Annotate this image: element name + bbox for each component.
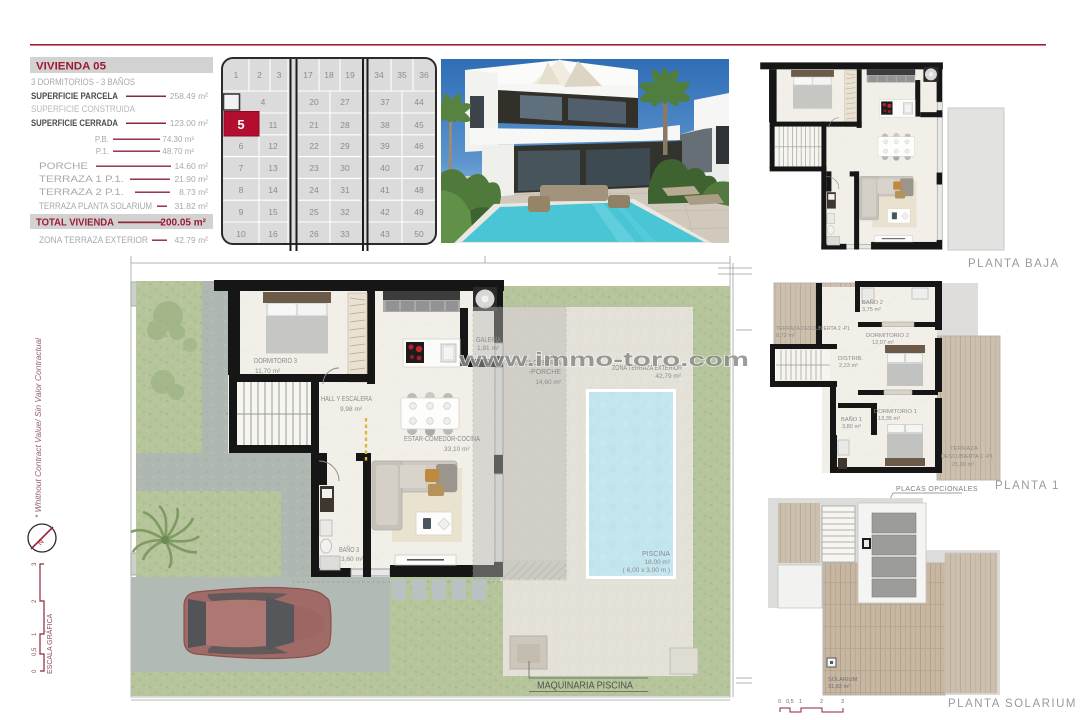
svg-text:DORMITORIO 1: DORMITORIO 1 (874, 409, 917, 415)
svg-text:1: 1 (234, 70, 239, 80)
svg-text:23: 23 (309, 163, 319, 173)
svg-text:14: 14 (268, 185, 278, 195)
svg-text:42.79 m²: 42.79 m² (174, 235, 208, 245)
svg-text:SOLARIUM: SOLARIUM (828, 677, 858, 683)
svg-text:33: 33 (340, 229, 350, 239)
svg-text:8.73 m²: 8.73 m² (179, 187, 208, 197)
svg-text:MAQUINARIA PISCINA: MAQUINARIA PISCINA (537, 681, 633, 692)
svg-text:38: 38 (380, 120, 390, 130)
svg-text:18,00 m²: 18,00 m² (644, 559, 670, 566)
svg-text:DORMITORIO 2: DORMITORIO 2 (866, 333, 909, 339)
svg-text:47: 47 (414, 163, 424, 173)
svg-text:29: 29 (340, 141, 350, 151)
svg-text:TERRAZA 2 P.1.: TERRAZA 2 P.1. (39, 187, 124, 197)
svg-text:4: 4 (261, 97, 266, 107)
svg-text:33,10 m²: 33,10 m² (444, 446, 470, 453)
svg-text:2: 2 (820, 699, 823, 705)
svg-text:VIVIENDA 05: VIVIENDA 05 (36, 61, 106, 73)
svg-text:DESCUBIERTA 1 -P1: DESCUBIERTA 1 -P1 (941, 454, 993, 460)
svg-text:0,5: 0,5 (786, 699, 794, 705)
svg-text:3,80 m²: 3,80 m² (842, 424, 861, 430)
svg-text:14.60 m²: 14.60 m² (174, 161, 208, 171)
svg-text:43: 43 (380, 229, 390, 239)
svg-text:3 DORMITORIOS - 3 BAÑOS: 3 DORMITORIOS - 3 BAÑOS (31, 77, 135, 87)
svg-text:48: 48 (414, 185, 424, 195)
svg-text:49: 49 (414, 207, 424, 217)
svg-text:19: 19 (345, 70, 355, 80)
svg-text:200.05 m²: 200.05 m² (160, 218, 206, 229)
svg-text:15: 15 (268, 207, 278, 217)
svg-text:P.B.: P.B. (95, 135, 109, 144)
svg-text:31: 31 (340, 185, 350, 195)
svg-text:SUPERFICIE CONSTRUIDA: SUPERFICIE CONSTRUIDA (31, 104, 135, 114)
svg-text:74.30 m²: 74.30 m² (162, 135, 194, 144)
svg-text:5: 5 (237, 117, 244, 132)
svg-text:ESTAR-COMEDOR-COCINA: ESTAR-COMEDOR-COCINA (404, 434, 480, 443)
svg-text:1: 1 (799, 699, 802, 705)
svg-text:BAÑO 3: BAÑO 3 (339, 545, 359, 554)
svg-text:P.1.: P.1. (96, 147, 109, 156)
svg-text:123.00 m²: 123.00 m² (170, 118, 208, 128)
svg-text:10: 10 (236, 229, 246, 239)
svg-text:DORMITORIO 3: DORMITORIO 3 (254, 356, 297, 365)
svg-text:45: 45 (414, 120, 424, 130)
svg-text:TERRAZA 1 P.1.: TERRAZA 1 P.1. (39, 174, 124, 184)
svg-text:37: 37 (380, 97, 390, 107)
svg-text:9,98 m²: 9,98 m² (340, 406, 363, 413)
svg-text:0,5: 0,5 (32, 647, 38, 656)
svg-text:6: 6 (239, 141, 244, 151)
svg-text:39: 39 (380, 141, 390, 151)
svg-text:3,60 m²: 3,60 m² (341, 556, 364, 563)
svg-text:13: 13 (268, 163, 278, 173)
svg-text:42,79 m²: 42,79 m² (655, 373, 681, 380)
svg-text:www.immo-toro.com: www.immo-toro.com (457, 350, 749, 371)
svg-text:22: 22 (309, 141, 319, 151)
svg-text:25: 25 (309, 207, 319, 217)
svg-text:34: 34 (374, 70, 384, 80)
svg-text:TOTAL VIVIENDA: TOTAL VIVIENDA (36, 218, 114, 229)
svg-text:PISCINA: PISCINA (642, 551, 670, 558)
svg-text:8: 8 (239, 185, 244, 195)
svg-text:21: 21 (309, 120, 319, 130)
svg-text:21.90 m²: 21.90 m² (174, 174, 208, 184)
svg-text:17: 17 (303, 70, 313, 80)
svg-text:21,90 m²: 21,90 m² (952, 462, 974, 468)
svg-text:11,70 m²: 11,70 m² (255, 368, 281, 375)
svg-text:32: 32 (340, 207, 350, 217)
svg-text:TERRAZA PLANTA SOLARIUM: TERRAZA PLANTA SOLARIUM (39, 201, 152, 211)
svg-text:18: 18 (324, 70, 334, 80)
svg-text:14,60 m²: 14,60 m² (535, 379, 561, 386)
svg-text:2,23 m²: 2,23 m² (839, 363, 858, 369)
svg-text:PORCHE: PORCHE (39, 161, 88, 171)
svg-text:3: 3 (841, 699, 844, 705)
svg-text:ESCALA GRÁFICA: ESCALA GRÁFICA (45, 613, 54, 674)
svg-text:SUPERFICIE PARCELA: SUPERFICIE PARCELA (31, 91, 118, 101)
svg-text:3: 3 (277, 70, 282, 80)
svg-text:12,07 m²: 12,07 m² (872, 340, 894, 346)
svg-text:13,35 m²: 13,35 m² (878, 416, 900, 422)
svg-text:ZONA TERRAZA EXTERIOR: ZONA TERRAZA EXTERIOR (39, 235, 148, 245)
svg-text:41: 41 (380, 185, 390, 195)
svg-text:7: 7 (239, 163, 244, 173)
svg-text:TERRAZA DESCUBIERTA 2 -P1: TERRAZA DESCUBIERTA 2 -P1 (776, 326, 850, 332)
svg-text:26: 26 (309, 229, 319, 239)
svg-text:* Whithout Contract Value/ Sin: * Whithout Contract Value/ Sin Valor Con… (34, 338, 43, 518)
svg-text:20: 20 (309, 97, 319, 107)
svg-text:12: 12 (268, 141, 278, 151)
svg-text:DISTRIB.: DISTRIB. (838, 356, 863, 362)
svg-text:40: 40 (380, 163, 390, 173)
svg-text:PLANTA BAJA: PLANTA BAJA (968, 258, 1060, 270)
svg-text:BAÑO 2: BAÑO 2 (862, 299, 883, 306)
svg-text:42: 42 (380, 207, 390, 217)
svg-text:31,82 m²: 31,82 m² (828, 684, 850, 690)
svg-text:48.70 m²: 48.70 m² (162, 147, 194, 156)
svg-text:50: 50 (414, 229, 424, 239)
svg-text:36: 36 (419, 70, 429, 80)
svg-text:PLANTA SOLARIUM: PLANTA SOLARIUM (948, 698, 1077, 710)
svg-text:28: 28 (340, 120, 350, 130)
svg-text:0: 0 (778, 699, 781, 705)
svg-text:46: 46 (414, 141, 424, 151)
svg-text:16: 16 (268, 229, 278, 239)
svg-text:( 6,00 x 3,00 m ): ( 6,00 x 3,00 m ) (623, 567, 670, 574)
svg-text:30: 30 (340, 163, 350, 173)
svg-text:31.82 m²: 31.82 m² (174, 201, 208, 211)
svg-text:44: 44 (414, 97, 424, 107)
svg-text:27: 27 (340, 97, 350, 107)
svg-text:BAÑO 1: BAÑO 1 (841, 416, 862, 423)
svg-text:258.49 m²: 258.49 m² (170, 91, 208, 101)
svg-text:HALL Y ESCALERA: HALL Y ESCALERA (321, 394, 372, 403)
svg-text:TERRAZA: TERRAZA (950, 446, 978, 452)
svg-text:9: 9 (239, 207, 244, 217)
svg-text:GALERÍA: GALERÍA (476, 335, 501, 344)
svg-text:2: 2 (257, 70, 262, 80)
svg-text:11: 11 (269, 120, 278, 130)
svg-text:PLACAS OPCIONALES: PLACAS OPCIONALES (896, 486, 978, 493)
svg-text:8,72 m²: 8,72 m² (776, 333, 795, 339)
svg-text:3,75 m²: 3,75 m² (862, 307, 881, 313)
svg-text:PLANTA 1: PLANTA 1 (995, 480, 1060, 492)
svg-text:35: 35 (397, 70, 407, 80)
svg-text:SUPERFICIE CERRADA: SUPERFICIE CERRADA (31, 118, 118, 128)
svg-text:24: 24 (309, 185, 319, 195)
